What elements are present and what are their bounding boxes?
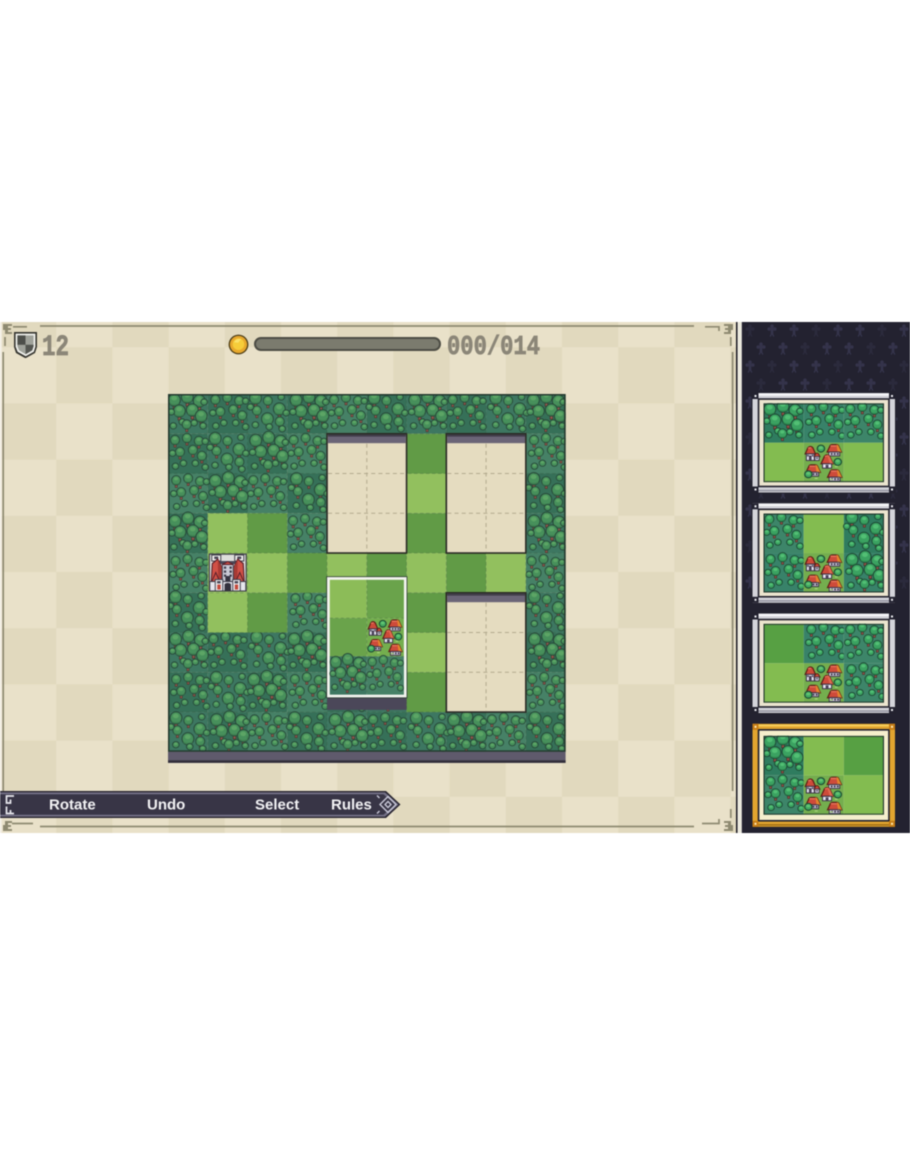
svg-text:Rotate: Rotate <box>49 797 96 814</box>
svg-text:Undo: Undo <box>147 797 185 814</box>
svg-text:12: 12 <box>42 331 69 361</box>
svg-text:Rules: Rules <box>331 797 372 814</box>
svg-text:000/014: 000/014 <box>447 333 540 360</box>
svg-text:Select: Select <box>255 797 299 814</box>
